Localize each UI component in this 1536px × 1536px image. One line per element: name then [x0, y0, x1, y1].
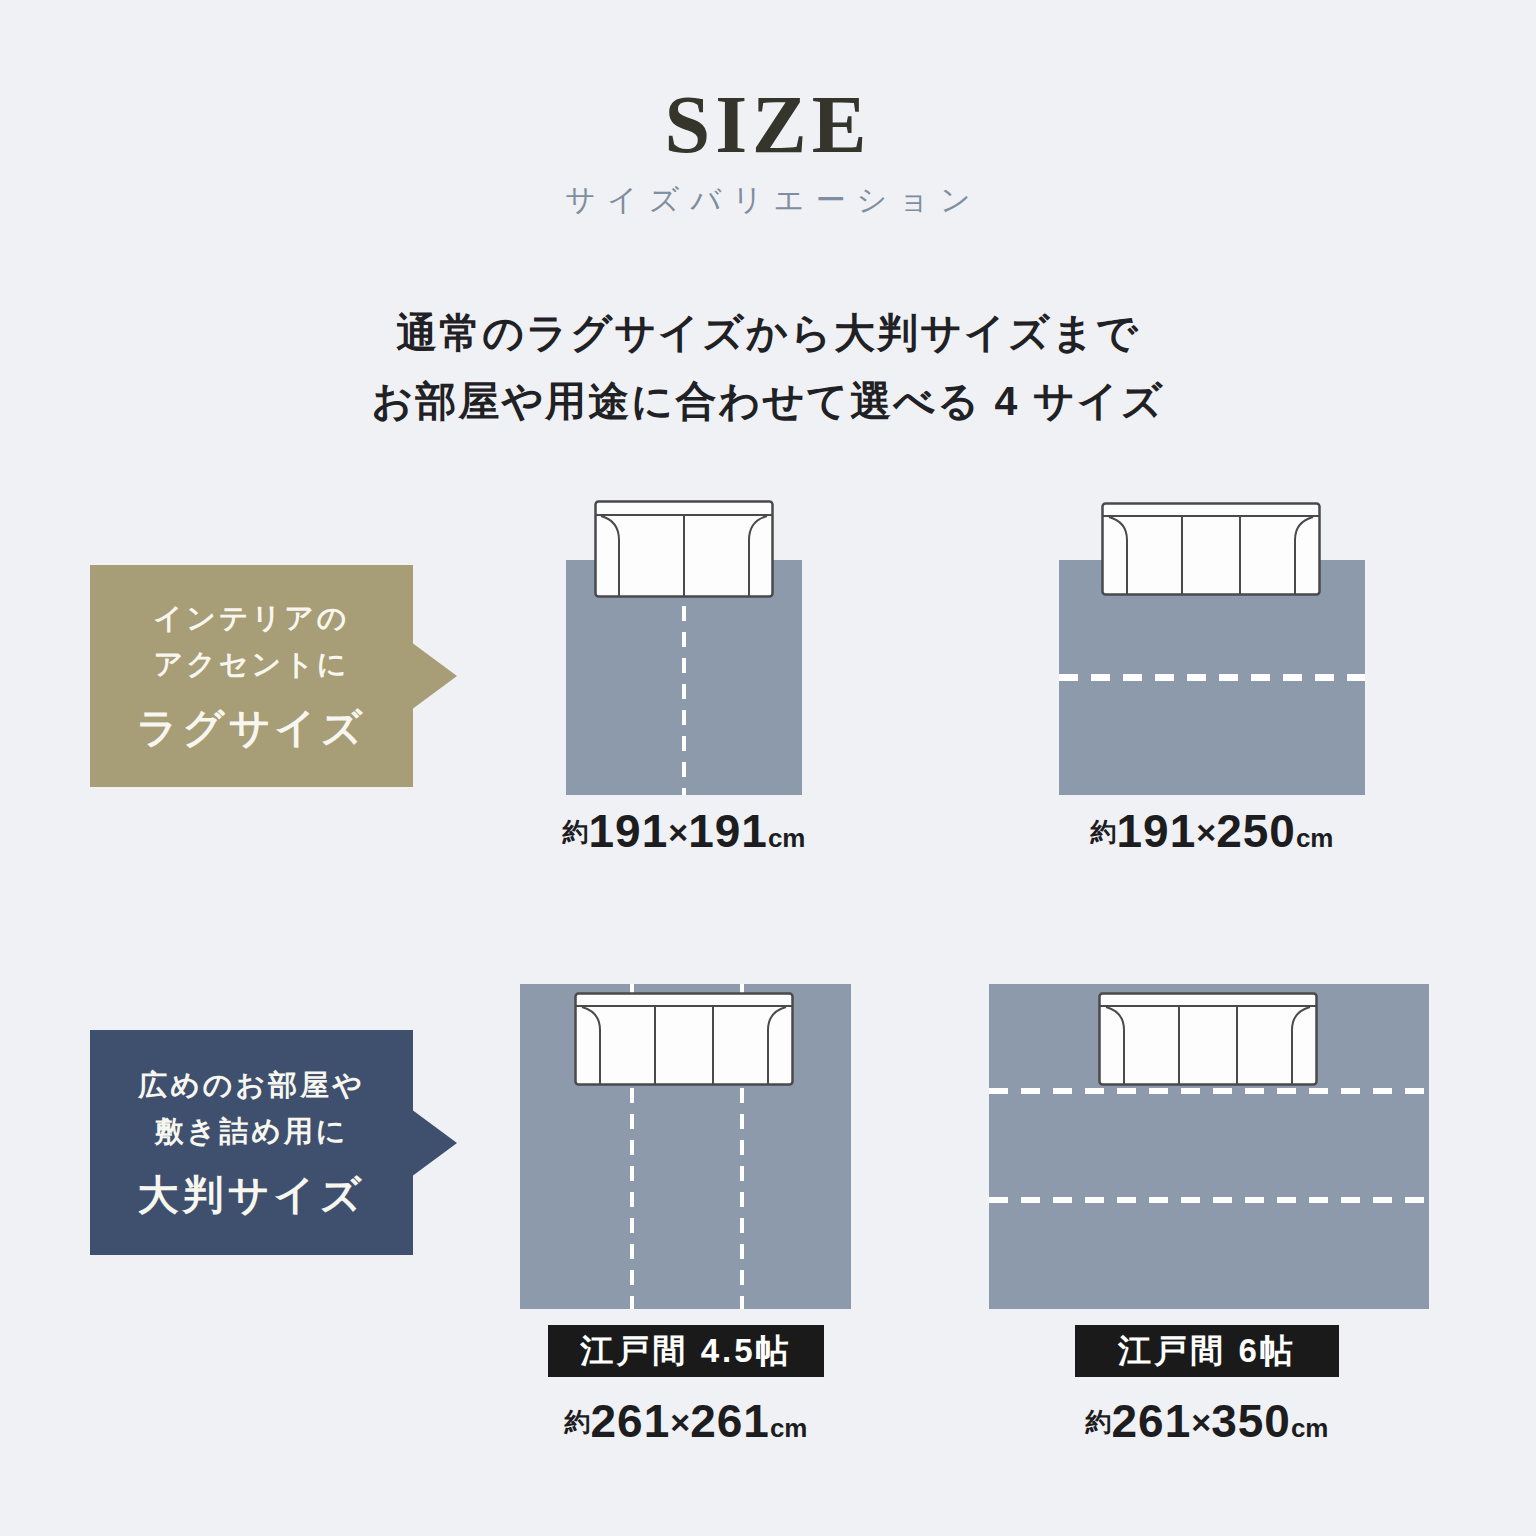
sofa-2seat-icon	[594, 500, 774, 598]
callout-title: ラグサイズ	[90, 701, 413, 756]
page-subtitle: サイズバリエーション	[0, 180, 1536, 221]
rug-size-callout: インテリアの アクセントに ラグサイズ	[90, 565, 413, 787]
intro-line-2: お部屋や用途に合わせて選べる 4 サイズ	[0, 374, 1536, 429]
size-label-191x191: 約191×191cm	[534, 804, 834, 858]
sofa-3seat-icon	[1101, 500, 1321, 598]
callout-title: 大判サイズ	[90, 1168, 413, 1223]
size-label-191x250: 約191×250cm	[1062, 804, 1362, 858]
large-size-callout: 広めのお部屋や 敷き詰め用に 大判サイズ	[90, 1030, 413, 1255]
callout-arrow-icon	[411, 642, 457, 710]
fold-line	[1059, 674, 1365, 681]
callout-line: 広めのお部屋や	[90, 1062, 413, 1108]
fold-line	[989, 1088, 1429, 1094]
tatami-badge-6jo: 江戸間 6帖	[1075, 1325, 1339, 1377]
size-label-261x350: 約261×350cm	[1057, 1394, 1357, 1448]
size-label-261x261: 約261×261cm	[536, 1394, 836, 1448]
tatami-badge-4-5jo: 江戸間 4.5帖	[548, 1325, 824, 1377]
rug-size-infographic: SIZE サイズバリエーション 通常のラグサイズから大判サイズまで お部屋や用途…	[0, 0, 1536, 1536]
page-title: SIZE	[0, 78, 1536, 172]
sofa-3seat-icon	[573, 992, 795, 1086]
sofa-3seat-icon	[1098, 992, 1318, 1086]
callout-line: 敷き詰め用に	[90, 1108, 413, 1154]
callout-line: アクセントに	[90, 641, 413, 687]
fold-line	[682, 606, 686, 795]
callout-arrow-icon	[411, 1109, 457, 1177]
intro-line-1: 通常のラグサイズから大判サイズまで	[0, 306, 1536, 361]
fold-line	[989, 1197, 1429, 1203]
callout-line: インテリアの	[90, 595, 413, 641]
